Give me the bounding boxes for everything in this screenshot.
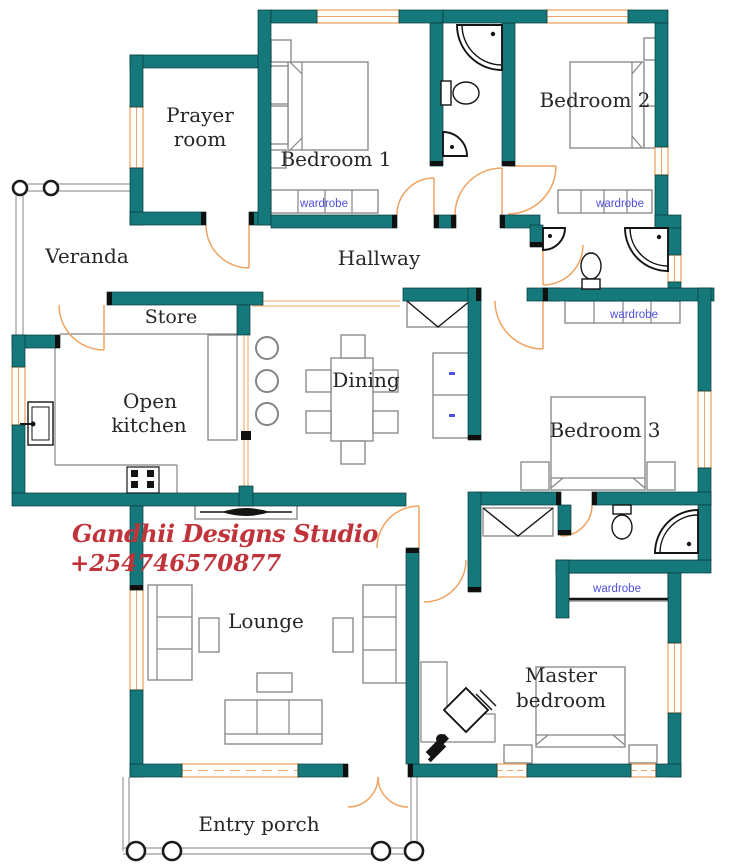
toilet-fixture — [581, 253, 601, 289]
window — [655, 147, 668, 175]
door-bathroom1 — [455, 168, 502, 215]
bedroom1-label: Bedroom 1 — [280, 147, 391, 171]
office-chair — [426, 734, 449, 763]
door-bathroom2 — [543, 245, 583, 285]
shower-fixture — [655, 510, 698, 553]
niche-shelf — [483, 508, 553, 536]
wardrobe-label-bedroom2: wardrobe — [595, 198, 644, 210]
window — [547, 10, 628, 23]
wardrobe-label-bedroom1: wardrobe — [299, 198, 348, 210]
door-master — [424, 560, 466, 602]
watermark-phone: +254746570877 — [70, 550, 281, 577]
prayer-room-label: Prayer — [166, 103, 234, 127]
column — [13, 181, 27, 195]
veranda-label: Veranda — [44, 244, 129, 268]
door-bedroom2 — [508, 166, 556, 214]
column — [44, 181, 58, 195]
column — [163, 842, 181, 860]
watermark-studio: Gandhii Designs Studio — [72, 519, 378, 548]
window — [317, 10, 399, 23]
door-prayer-room — [206, 225, 249, 268]
entry-porch-label: Entry porch — [198, 812, 319, 836]
stove-fixture — [127, 467, 159, 493]
store-label: Store — [145, 306, 197, 328]
window — [631, 764, 656, 777]
breakfast-stools — [256, 337, 278, 425]
column — [405, 842, 423, 860]
window — [668, 255, 681, 282]
dining-set — [306, 335, 398, 464]
toilet-fixture — [612, 505, 632, 539]
column — [127, 842, 145, 860]
master-bedroom-label-2: bedroom — [516, 688, 606, 712]
shower-fixture — [457, 25, 502, 70]
dining-threshold — [252, 301, 400, 306]
toilet-fixture — [441, 81, 479, 105]
master-desk — [421, 662, 496, 762]
window — [130, 590, 143, 690]
dining-label: Dining — [332, 368, 400, 392]
floor-plan-drawing: Prayer room Bedroom 1 Bedroom 2 Veranda … — [0, 0, 735, 864]
window — [130, 107, 143, 168]
sideboard-shelf — [407, 301, 470, 327]
door-bedroom3 — [495, 301, 543, 349]
open-kitchen-label: Open — [123, 389, 177, 413]
open-kitchen-label-2: kitchen — [111, 413, 186, 437]
door-entry-double — [348, 777, 408, 807]
floor-plan: Prayer room Bedroom 1 Bedroom 2 Veranda … — [0, 0, 735, 864]
door-kitchen — [59, 305, 104, 350]
master-bedroom-label: Master — [525, 663, 598, 687]
sink-fixture — [443, 132, 467, 156]
serving-hatch — [195, 505, 297, 519]
shower-fixture — [625, 228, 668, 271]
bedroom3-label: Bedroom 3 — [549, 418, 660, 442]
prayer-room-label-2: room — [174, 127, 227, 151]
bedroom2-label: Bedroom 2 — [539, 88, 650, 112]
lounge-label: Lounge — [228, 609, 304, 633]
window — [497, 764, 527, 777]
window — [182, 764, 298, 777]
dining-cabinet — [433, 353, 471, 438]
wardrobe-label-bedroom3: wardrobe — [609, 309, 658, 321]
door-lounge — [377, 506, 419, 548]
kitchen-partition — [241, 335, 251, 486]
window — [698, 391, 711, 468]
window — [12, 367, 25, 425]
wardrobe-label-master: wardrobe — [592, 583, 641, 595]
window — [668, 643, 681, 713]
hallway-label: Hallway — [338, 246, 421, 270]
sink-fixture — [543, 228, 565, 250]
door-bedroom1 — [397, 178, 434, 215]
bed-bedroom3 — [521, 397, 675, 490]
column — [372, 842, 390, 860]
